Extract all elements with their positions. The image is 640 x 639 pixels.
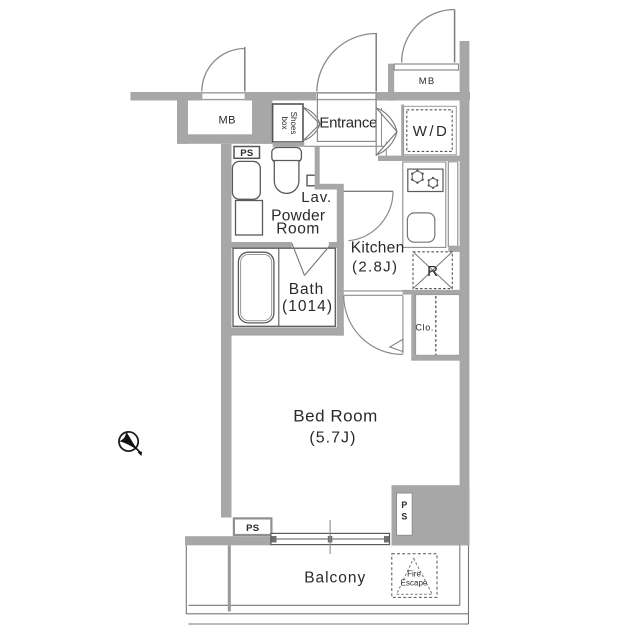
svg-text:Escape: Escape <box>401 579 428 588</box>
svg-text:R: R <box>427 263 438 280</box>
svg-text:(5.7J): (5.7J) <box>309 429 355 446</box>
svg-text:Bath: Bath <box>289 281 324 298</box>
svg-text:MB: MB <box>419 76 435 87</box>
svg-text:Bed Room: Bed Room <box>293 407 377 426</box>
svg-text:(2.8J): (2.8J) <box>352 259 397 276</box>
svg-text:Shoes: Shoes <box>289 112 298 135</box>
svg-text:Lav.: Lav. <box>301 189 331 206</box>
svg-text:PS: PS <box>246 523 259 534</box>
svg-text:MB: MB <box>219 115 236 127</box>
svg-text:box: box <box>280 117 289 130</box>
svg-text:Kitchen: Kitchen <box>351 239 404 256</box>
svg-text:P: P <box>401 500 407 510</box>
svg-text:Balcony: Balcony <box>304 569 365 586</box>
svg-text:(1014): (1014) <box>282 298 332 315</box>
svg-text:S: S <box>401 512 407 522</box>
svg-text:Entrance: Entrance <box>319 115 377 132</box>
svg-text:Room: Room <box>276 220 319 237</box>
svg-text:Clo.: Clo. <box>415 323 433 333</box>
svg-text:W/D: W/D <box>413 123 447 140</box>
svg-text:PS: PS <box>240 148 253 159</box>
svg-text:Fire: Fire <box>407 569 421 578</box>
